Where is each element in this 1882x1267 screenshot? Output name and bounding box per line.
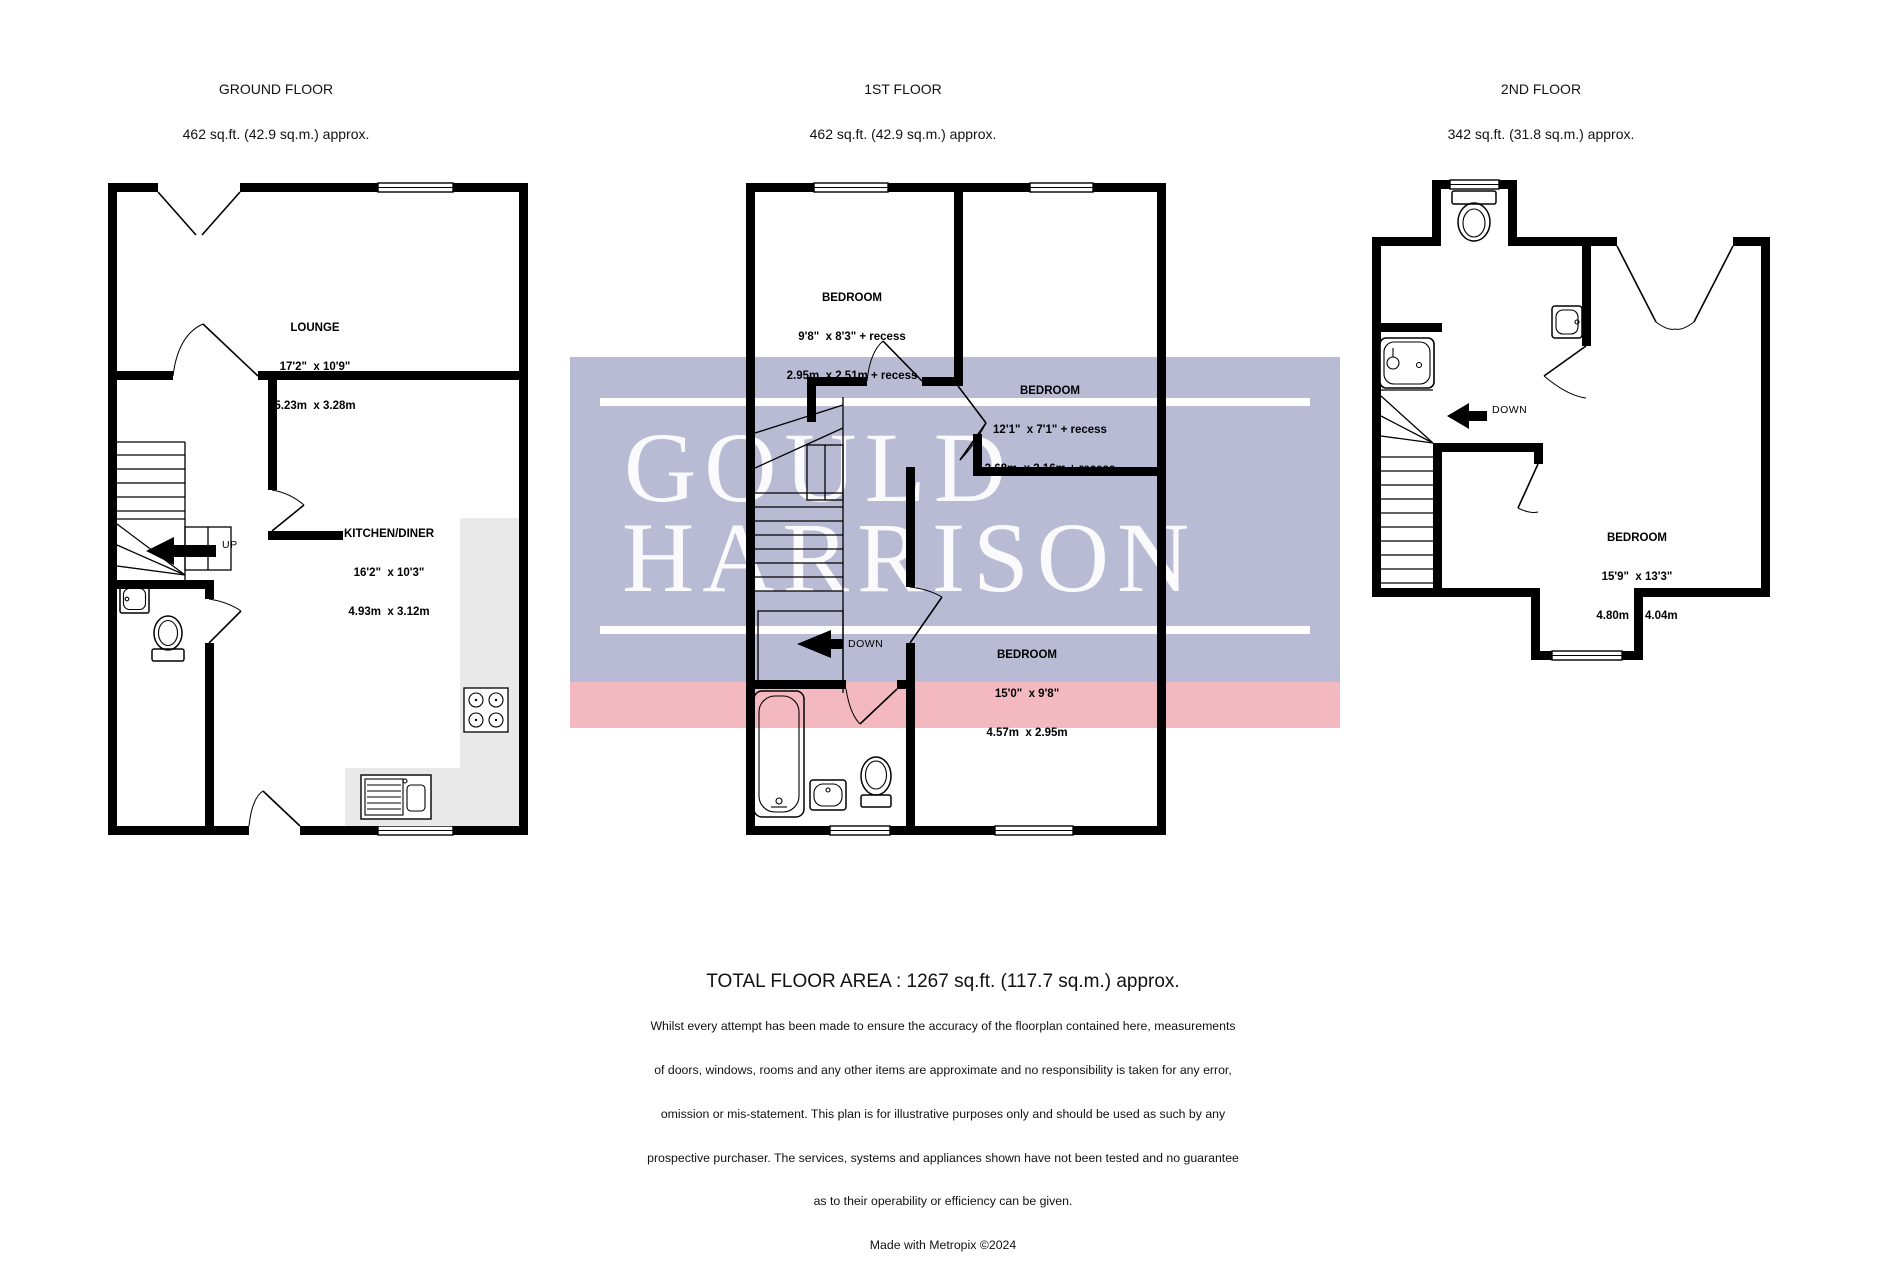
stairs-icon [1381,390,1433,583]
disclaimer-line: omission or mis-statement. This plan is … [647,1107,1239,1122]
entry-double-door-icon [158,192,240,235]
disclaimer-line: Whilst every attempt has been made to en… [647,1019,1239,1034]
bedroom4-label: BEDROOM 15'9" x 13'3" 4.80m x 4.04m [1596,506,1677,636]
kitchen-door-icon [272,490,304,531]
stairs-icon [117,442,185,580]
bedroom2-label: BEDROOM 12'1" x 7'1" + recess 3.68m x 2.… [985,359,1116,489]
second-floor-plan [1372,180,1770,680]
second-walls [1372,180,1770,660]
room-imperial: 15'0" x 9'8" [986,688,1067,701]
room-name: BEDROOM [787,292,918,305]
room-metric: 4.80m x 4.04m [1596,610,1677,623]
ground-floor-title: GROUND FLOOR [183,82,370,97]
down-label-first: DOWN [848,638,883,650]
down-arrow-icon [1447,403,1487,429]
down-label-second: DOWN [1492,404,1527,416]
metropix-credit: Made with Metropix ©2024 [647,1238,1239,1253]
room-imperial: 9'8" x 8'3" + recess [787,331,918,344]
ground-floor-area: 462 sq.ft. (42.9 sq.m.) approx. [183,127,370,142]
back-door-icon [249,791,300,826]
room-name: BEDROOM [1596,532,1677,545]
landing-closet [807,445,843,500]
second-floor-title: 2ND FLOOR [1448,82,1635,97]
wc-door-icon [209,599,241,643]
bedroom-door-icon [1518,464,1538,513]
wc-sink-icon [120,585,149,613]
wardrobe-double-doors-icon [1617,246,1733,329]
landing-door-icon [1544,346,1586,398]
kitchen-diner-label: KITCHEN/DINER 16'2" x 10'3" 4.93m x 3.12… [344,502,434,632]
disclaimer-line: as to their operability or efficiency ca… [647,1194,1239,1209]
ground-floor-header: GROUND FLOOR 462 sq.ft. (42.9 sq.m.) app… [183,52,370,157]
lounge-door-icon [173,324,258,376]
room-imperial: 16'2" x 10'3" [344,567,434,580]
toilet-icon [861,757,891,807]
floorplan-page: { "floors": [ { "name": "GROUND FLOOR", … [0,0,1882,1080]
room-metric: 5.23m x 3.28m [274,400,355,413]
ground-floor-plan [108,183,528,835]
room-imperial: 15'9" x 13'3" [1596,571,1677,584]
bathroom-door-icon [846,689,897,724]
up-arrow-icon [146,537,216,565]
room-metric: 2.95m x 2.51m + recess [787,370,918,383]
bedroom3-label: BEDROOM 15'0" x 9'8" 4.57m x 2.95m [986,623,1067,753]
room-name: BEDROOM [986,649,1067,662]
second-floor-area: 342 sq.ft. (31.8 sq.m.) approx. [1448,127,1635,142]
room-metric: 3.68m x 2.16m + recess [985,463,1116,476]
second-floor-header: 2ND FLOOR 342 sq.ft. (31.8 sq.m.) approx… [1448,52,1635,157]
lounge-label: LOUNGE 17'2" x 10'9" 5.23m x 3.28m [274,296,355,426]
room-imperial: 12'1" x 7'1" + recess [985,424,1116,437]
bath-icon [754,691,804,817]
up-label: UP [222,539,238,551]
toilet-icon [152,616,184,661]
down-arrow-icon [797,630,843,658]
toilet-icon [1452,191,1496,241]
room-metric: 4.93m x 3.12m [344,606,434,619]
room-name: KITCHEN/DINER [344,528,434,541]
room-name: LOUNGE [274,322,355,335]
bedroom1-label: BEDROOM 9'8" x 8'3" + recess 2.95m x 2.5… [787,266,918,396]
bathroom-sink-icon [810,780,846,810]
disclaimer-line: of doors, windows, rooms and any other i… [647,1063,1239,1078]
room-metric: 4.57m x 2.95m [986,727,1067,740]
hob-icon [464,688,508,732]
room-name: BEDROOM [985,385,1116,398]
bedroom3-door-icon [910,587,942,643]
disclaimer-line: prospective purchaser. The services, sys… [647,1151,1239,1166]
first-floor-area: 462 sq.ft. (42.9 sq.m.) approx. [810,127,997,142]
wall-sink-icon [1552,306,1582,338]
disclaimer: Whilst every attempt has been made to en… [647,990,1239,1267]
kitchen-sink-icon [361,775,431,819]
room-imperial: 17'2" x 10'9" [274,361,355,374]
first-floor-header: 1ST FLOOR 462 sq.ft. (42.9 sq.m.) approx… [810,52,997,157]
first-floor-title: 1ST FLOOR [810,82,997,97]
shower-icon [1380,338,1434,388]
